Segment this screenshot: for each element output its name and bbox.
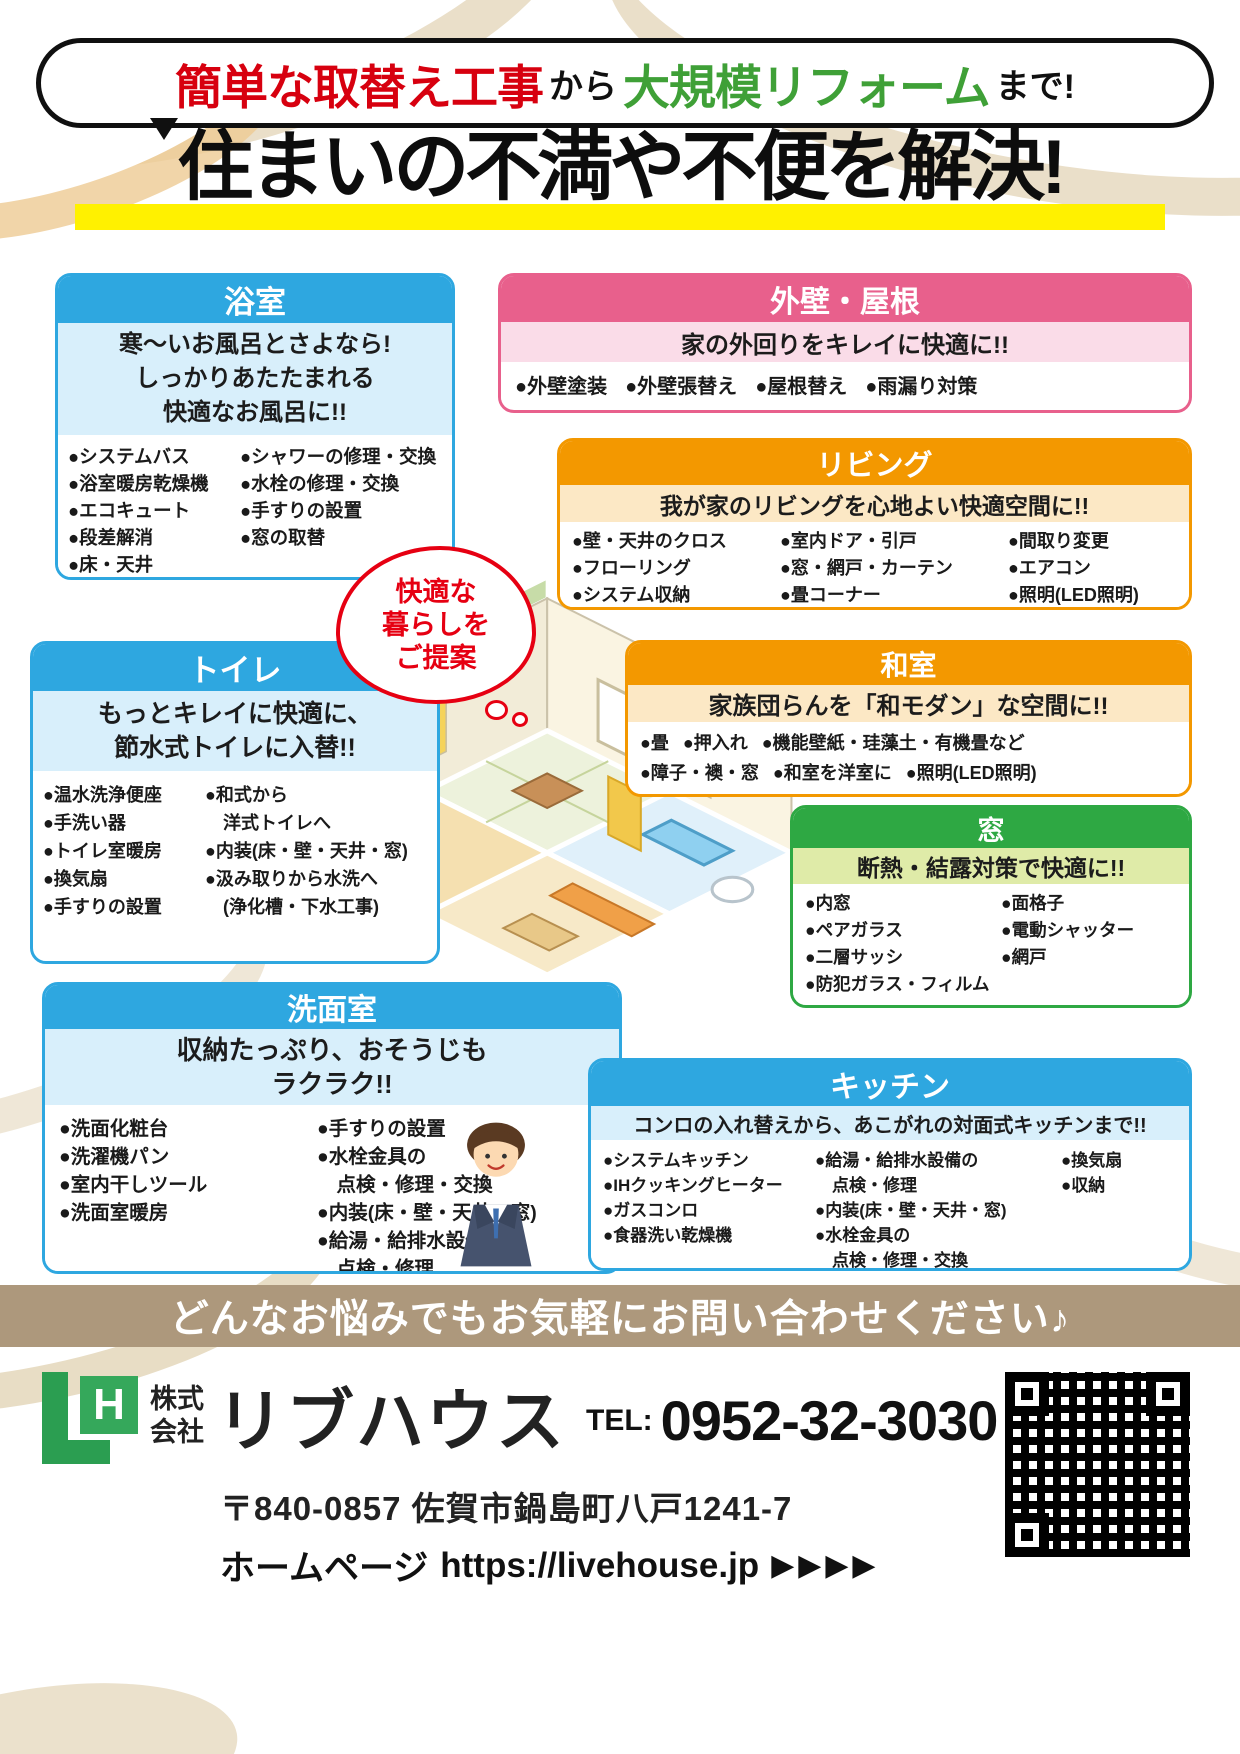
section-washroom-title: 洗面室 xyxy=(45,985,619,1029)
service-item: ●雨漏り対策 xyxy=(865,370,977,399)
section-bathroom-subtitle: 寒〜いお風呂とさよなら! しっかりあたたまれる 快適なお風呂に!! xyxy=(58,323,452,435)
contact-banner-text: どんなお悩みでもお気軽にお問い合わせください♪ xyxy=(170,1288,1071,1344)
phone-block: TEL: 0952-32-3030 xyxy=(586,1388,997,1453)
qr-finder-pattern xyxy=(1005,1513,1049,1557)
main-title-block: 住まいの不満や不便を解決! xyxy=(40,118,1200,218)
service-item: ●温水洗浄便座 xyxy=(43,781,205,809)
section-washitsu-card: 和室 家族団らんを「和モダン」な空間に!! ●畳 ●押入れ ●機能壁紙・珪藻土・… xyxy=(625,640,1192,797)
service-item: ●システム収納 xyxy=(572,582,780,609)
service-item: ●電動シャッター xyxy=(1001,917,1177,944)
service-item: ●ガスコンロ xyxy=(603,1198,815,1223)
service-item: ●機能壁紙・珪藻土・有機畳など xyxy=(762,728,1025,758)
company-name: リブハウス xyxy=(216,1366,566,1465)
section-kitchen-subtitle: コンロの入れ替えから、あこがれの対面式キッチンまで!! xyxy=(591,1106,1189,1140)
bubble-tail-dot xyxy=(485,700,508,720)
arrow-icons: ▶▶▶▶ xyxy=(771,1548,879,1583)
service-item: ●換気扇 xyxy=(1061,1148,1177,1173)
catch-kara: から xyxy=(549,59,617,108)
section-window-title: 窓 xyxy=(793,808,1189,848)
section-living-subtitle: 我が家のリビングを心地よい快適空間に!! xyxy=(560,485,1189,522)
section-exterior-subtitle: 家の外回りをキレイに快適に!! xyxy=(501,322,1189,362)
service-item: ●洗面室暖房 xyxy=(59,1199,317,1227)
homepage-row: ホームページ https://livehouse.jp ▶▶▶▶ xyxy=(220,1540,879,1591)
contact-banner: どんなお悩みでもお気軽にお問い合わせください♪ xyxy=(0,1285,1240,1347)
service-item: ●浴室暖房乾燥機 xyxy=(68,470,240,497)
section-washroom-subtitle: 収納たっぷり、おそうじも ラクラク!! xyxy=(45,1029,619,1105)
service-item: ●フローリング xyxy=(572,555,780,582)
service-item: ●水栓の修理・交換 xyxy=(240,470,442,497)
catch-made: まで! xyxy=(996,59,1075,108)
service-item: ●畳コーナー xyxy=(780,582,1008,609)
background-ribbon xyxy=(0,1655,251,1754)
service-item: ●間取り変更 xyxy=(1008,528,1177,555)
section-washitsu-subtitle: 家族団らんを「和モダン」な空間に!! xyxy=(628,685,1189,722)
service-item: ●トイレ室暖房 xyxy=(43,837,205,865)
section-kitchen-card: キッチン コンロの入れ替えから、あこがれの対面式キッチンまで!! ●システムキッ… xyxy=(588,1058,1192,1271)
qr-code xyxy=(1005,1372,1190,1557)
bubble-line: 快適な xyxy=(396,576,477,609)
section-exterior-title: 外壁・屋根 xyxy=(501,276,1189,322)
service-item: ●屋根替え xyxy=(755,370,847,399)
service-item: ●和式から 洋式トイレへ xyxy=(205,781,427,837)
section-living-card: リビング 我が家のリビングを心地よい快適空間に!! ●壁・天井のクロス ●フロー… xyxy=(557,438,1192,610)
service-item: ●押入れ xyxy=(683,728,748,758)
service-item: ●畳 xyxy=(640,728,669,758)
section-washitsu-title: 和室 xyxy=(628,643,1189,685)
section-window-subtitle: 断熱・結露対策で快適に!! xyxy=(793,848,1189,884)
company-logo: H xyxy=(42,1372,138,1464)
service-item: ●外壁塗装 xyxy=(515,370,607,399)
service-item: ●網戸 xyxy=(1001,944,1177,971)
bubble-line: 暮らしを xyxy=(382,609,490,642)
catch-large-reform: 大規模リフォーム xyxy=(623,49,990,118)
service-item: ●内装(床・壁・天井・窓) xyxy=(205,837,427,865)
logo-l-shape xyxy=(42,1440,110,1464)
service-item: ●水栓金具の 点検・修理・交換 xyxy=(815,1223,1061,1271)
section-bathroom-card: 浴室 寒〜いお風呂とさよなら! しっかりあたたまれる 快適なお風呂に!! ●シス… xyxy=(55,273,455,580)
person-illustration xyxy=(440,1102,552,1272)
service-item: ●ペアガラス xyxy=(805,917,1001,944)
service-item: ●二層サッシ xyxy=(805,944,1001,971)
service-item: ●内窓 xyxy=(805,890,1001,917)
bubble-line: ご提案 xyxy=(396,642,477,675)
service-item: ●段差解消 xyxy=(68,524,240,551)
service-item: ●面格子 xyxy=(1001,890,1177,917)
service-item: ●室内ドア・引戸 xyxy=(780,528,1008,555)
service-item: ●システムバス xyxy=(68,443,240,470)
catch-easy-works: 簡単な取替え工事 xyxy=(175,49,543,118)
service-item: ●床・天井 xyxy=(68,551,240,578)
service-item: ●洗面化粧台 xyxy=(59,1115,317,1143)
service-item: ●汲み取りから水洗へ (浄化槽・下水工事) xyxy=(205,865,427,921)
top-catch-banner: 簡単な取替え工事 から 大規模リフォーム まで! xyxy=(36,38,1214,128)
service-item: ●窓の取替 xyxy=(240,524,442,551)
service-item: ●食器洗い乾燥機 xyxy=(603,1223,815,1248)
service-item: ●手すりの設置 xyxy=(240,497,442,524)
service-item: ●手すりの設置 xyxy=(43,893,205,921)
service-item: ●IHクッキングヒーター xyxy=(603,1173,815,1198)
service-item: ●洗濯機パン xyxy=(59,1143,317,1171)
company-prefix-line: 会社 xyxy=(150,1416,204,1449)
tel-number: 0952-32-3030 xyxy=(661,1388,998,1453)
service-item: ●防犯ガラス・フィルム xyxy=(805,971,1001,998)
qr-finder-pattern xyxy=(1146,1372,1190,1416)
tel-label: TEL: xyxy=(586,1404,653,1438)
company-prefix-line: 株式 xyxy=(150,1383,204,1416)
section-bathroom-title: 浴室 xyxy=(58,276,452,323)
section-window-card: 窓 断熱・結露対策で快適に!! ●内窓 ●ペアガラス ●二層サッシ ●防犯ガラス… xyxy=(790,805,1192,1008)
page-title: 住まいの不満や不便を解決! xyxy=(40,118,1200,218)
logo-h-mark: H xyxy=(80,1376,138,1434)
flyer-page: 簡単な取替え工事 から 大規模リフォーム まで! 住まいの不満や不便を解決! xyxy=(0,0,1240,1754)
service-item: ●エアコン xyxy=(1008,555,1177,582)
bubble-tail-dot xyxy=(512,712,528,727)
section-living-title: リビング xyxy=(560,441,1189,485)
service-item: ●システムキッチン xyxy=(603,1148,815,1173)
service-item: ●障子・襖・窓 xyxy=(640,758,759,788)
service-item: ●外壁張替え xyxy=(625,370,737,399)
section-toilet-subtitle: もっとキレイに快適に、 節水式トイレに入替!! xyxy=(33,691,437,771)
service-item: ●室内干しツール xyxy=(59,1171,317,1199)
company-prefix: 株式 会社 xyxy=(150,1383,204,1449)
service-item: ●換気扇 xyxy=(43,865,205,893)
qr-finder-pattern xyxy=(1005,1372,1049,1416)
homepage-url: https://livehouse.jp xyxy=(440,1546,759,1586)
service-item: ●収納 xyxy=(1061,1173,1177,1198)
company-address: 〒840-0857 佐賀市鍋島町八戸1241-7 xyxy=(220,1482,792,1530)
service-item: ●シャワーの修理・交換 xyxy=(240,443,442,470)
service-item: ●内装(床・壁・天井・窓) xyxy=(815,1198,1061,1223)
service-item: ●給湯・給排水設備の 点検・修理 xyxy=(815,1148,1061,1198)
service-item: ●照明(LED照明) xyxy=(906,758,1037,788)
service-item: ●手洗い器 xyxy=(43,809,205,837)
service-item: ●窓・網戸・カーテン xyxy=(780,555,1008,582)
service-item: ●照明(LED照明) xyxy=(1008,582,1177,609)
service-item: ●エコキュート xyxy=(68,497,240,524)
service-item: ●和室を洋室に xyxy=(773,758,892,788)
section-kitchen-title: キッチン xyxy=(591,1061,1189,1106)
section-exterior-card: 外壁・屋根 家の外回りをキレイに快適に!! ●外壁塗装 ●外壁張替え ●屋根替え… xyxy=(498,273,1192,413)
homepage-label: ホームページ xyxy=(220,1540,428,1591)
service-item: ●壁・天井のクロス xyxy=(572,528,780,555)
